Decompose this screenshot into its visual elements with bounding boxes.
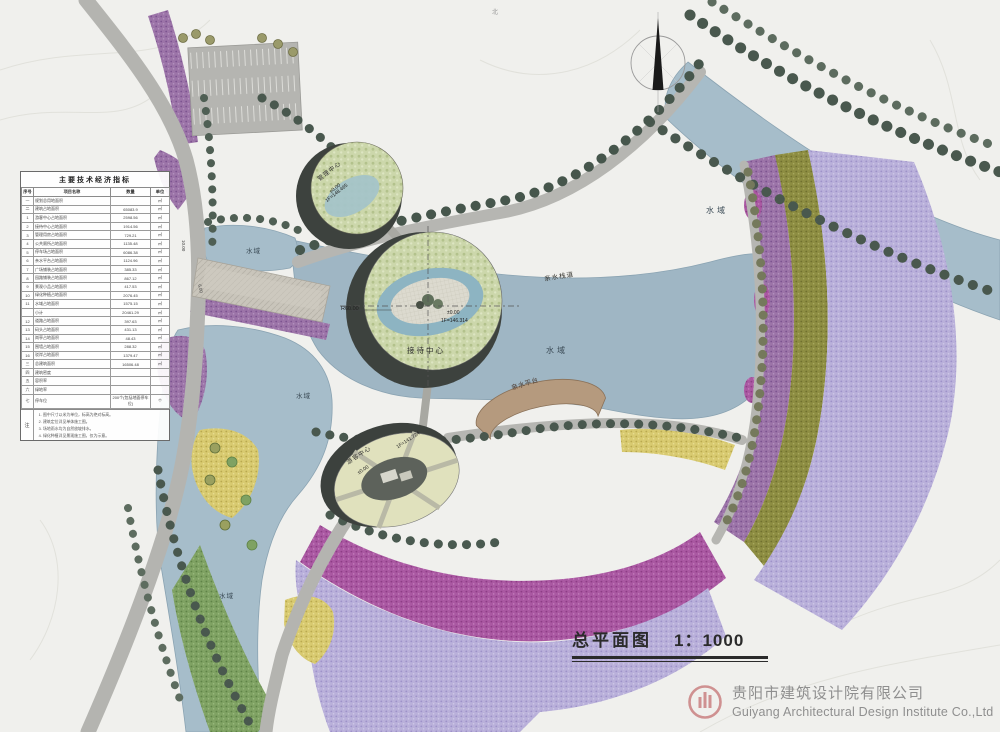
table-cell: 园路铺装占地面积 bbox=[34, 274, 111, 283]
table-cell: 200个(包括地面停车位) bbox=[111, 394, 151, 409]
table-cell: 七 bbox=[22, 394, 34, 409]
table-cell: 20461.29 bbox=[111, 308, 151, 317]
table-cell: 围墙占地面积 bbox=[34, 343, 111, 352]
table-cell: ㎡ bbox=[151, 351, 170, 360]
table-cell: ㎡ bbox=[151, 197, 170, 206]
table-cell bbox=[151, 386, 170, 395]
column-header: 数量 bbox=[111, 188, 151, 197]
table-row: 16驳岸占地面积1379.47㎡ bbox=[22, 351, 170, 360]
table-cell: 729.21 bbox=[111, 231, 151, 240]
table-cell: 容积率 bbox=[34, 377, 111, 386]
column-header: 序号 bbox=[22, 188, 34, 197]
water-label-north-pond: 水域 bbox=[246, 249, 261, 256]
table-cell: 2 bbox=[22, 222, 34, 231]
table-cell: 驳岸占地面积 bbox=[34, 351, 111, 360]
table-cell: 1914.56 bbox=[111, 222, 151, 231]
table-cell: 13 bbox=[22, 325, 34, 334]
table-row: 2接待中心占地面积1914.56㎡ bbox=[22, 222, 170, 231]
table-cell: ㎡ bbox=[151, 291, 170, 300]
table-row: 1游客中心占地面积2598.56㎡ bbox=[22, 214, 170, 223]
table-cell: ㎡ bbox=[151, 334, 170, 343]
table-cell: ㎡ bbox=[151, 308, 170, 317]
table-row: 6亲水平台占地面积1124.96㎡ bbox=[22, 257, 170, 266]
table-cell bbox=[22, 308, 34, 317]
title-rule-thick bbox=[572, 656, 768, 659]
road-dim-label-2: 6.00 bbox=[197, 284, 203, 294]
table-cell: 1379.47 bbox=[111, 351, 151, 360]
sheet-title-text: 总平面图 bbox=[572, 626, 652, 651]
company-logo-block: 贵阳市建筑设计院有限公司 Guiyang Architectural Desig… bbox=[686, 682, 993, 722]
north-text: 北 bbox=[492, 10, 498, 16]
table-cell: ㎡ bbox=[151, 222, 170, 231]
table-cell: 公共厕所占地面积 bbox=[34, 239, 111, 248]
indicator-table-title: 主要技术经济指标 bbox=[21, 172, 169, 187]
table-cell bbox=[111, 197, 151, 206]
table-cell bbox=[111, 386, 151, 395]
table-cell: 7 bbox=[22, 265, 34, 274]
table-cell: 建筑密度 bbox=[34, 368, 111, 377]
company-logo-icon bbox=[686, 682, 726, 722]
table-cell: 6 bbox=[22, 257, 34, 266]
table-row: 11水域占地面积1575.15㎡ bbox=[22, 300, 170, 309]
table-row: 5停车场占地面积6086.38㎡ bbox=[22, 248, 170, 257]
table-cell: 5 bbox=[22, 248, 34, 257]
table-cell: 个 bbox=[151, 394, 170, 409]
table-cell: ㎡ bbox=[151, 205, 170, 214]
table-row: 三总建筑面积16506.48㎡ bbox=[22, 360, 170, 369]
table-cell: 1135.48 bbox=[111, 239, 151, 248]
table-cell: 867.12 bbox=[111, 274, 151, 283]
table-row: 七停车位200个(包括地面停车位)个 bbox=[22, 394, 170, 409]
site-plan-sheet: 水域水域水域水域水域亲水栈道亲水平台接待中心R60.00±0.001F=146.… bbox=[0, 0, 1000, 732]
table-cell: ㎡ bbox=[151, 231, 170, 240]
table-row: 8园路铺装占地面积867.12㎡ bbox=[22, 274, 170, 283]
water-label-ne: 水域 bbox=[706, 207, 728, 215]
table-row: 4公共厕所占地面积1135.48㎡ bbox=[22, 239, 170, 248]
table-cell: ㎡ bbox=[151, 274, 170, 283]
table-cell: 1 bbox=[22, 214, 34, 223]
title-rule-thin bbox=[572, 661, 768, 662]
table-cell: 12 bbox=[22, 317, 34, 326]
table-cell: 385.33 bbox=[111, 265, 151, 274]
table-cell: 绿化种植占地面积 bbox=[34, 291, 111, 300]
table-cell: 10 bbox=[22, 291, 34, 300]
table-cell: 8 bbox=[22, 274, 34, 283]
table-cell: 亲水平台占地面积 bbox=[34, 257, 111, 266]
table-cell: 三 bbox=[22, 360, 34, 369]
note-line: 绿化种植详见景观施工图，仅为示意。 bbox=[43, 432, 113, 439]
table-cell: 停车位 bbox=[34, 394, 111, 409]
table-cell: 停车场占地面积 bbox=[34, 248, 111, 257]
table-cell: ㎡ bbox=[151, 360, 170, 369]
table-cell bbox=[111, 377, 151, 386]
table-cell: ㎡ bbox=[151, 214, 170, 223]
table-cell: 417.53 bbox=[111, 282, 151, 291]
table-cell: 16 bbox=[22, 351, 34, 360]
table-cell: 景观小品占地面积 bbox=[34, 282, 111, 291]
table-cell: ㎡ bbox=[151, 257, 170, 266]
table-row: 13码头占地面积431.13㎡ bbox=[22, 325, 170, 334]
table-cell: ㎡ bbox=[151, 248, 170, 257]
water-label-west: 水域 bbox=[296, 394, 311, 401]
table-cell: 管理用房占地面积 bbox=[34, 231, 111, 240]
table-row: 14岗亭占地面积48.43㎡ bbox=[22, 334, 170, 343]
table-row: 7广场铺装占地面积385.33㎡ bbox=[22, 265, 170, 274]
radius-label: R60.00 bbox=[341, 307, 359, 313]
table-cell: ㎡ bbox=[151, 239, 170, 248]
table-cell: 二 bbox=[22, 205, 34, 214]
notes-key: 注 bbox=[21, 410, 34, 440]
table-row: 五容积率 bbox=[22, 377, 170, 386]
reception-center-label: 接待中心 bbox=[407, 347, 445, 355]
table-cell: 码头占地面积 bbox=[34, 325, 111, 334]
table-cell: 规划总用地面积 bbox=[34, 197, 111, 206]
table-cell: 4 bbox=[22, 239, 34, 248]
center-elev-label-1: ±0.00 bbox=[447, 311, 459, 316]
table-cell: 6086.38 bbox=[111, 248, 151, 257]
table-cell: 288.32 bbox=[111, 343, 151, 352]
building-lower bbox=[307, 406, 472, 546]
center-elev-label-2: 1F=146.314 bbox=[441, 319, 468, 324]
table-cell: 65083.9 bbox=[111, 205, 151, 214]
table-cell bbox=[151, 368, 170, 377]
table-cell: 1124.96 bbox=[111, 257, 151, 266]
table-cell: 道路占地面积 bbox=[34, 317, 111, 326]
table-cell: 水域占地面积 bbox=[34, 300, 111, 309]
table-cell: 16506.48 bbox=[111, 360, 151, 369]
table-cell: ㎡ bbox=[151, 265, 170, 274]
table-cell: ㎡ bbox=[151, 343, 170, 352]
note-line: 图中尺寸以米为单位，标高为绝对标高。 bbox=[43, 411, 113, 418]
table-cell: 五 bbox=[22, 377, 34, 386]
road-dim-label-1: 10.00 bbox=[181, 240, 186, 251]
table-cell: 绿地率 bbox=[34, 386, 111, 395]
table-cell: 11 bbox=[22, 300, 34, 309]
table-cell: 小计 bbox=[34, 308, 111, 317]
table-row: 15围墙占地面积288.32㎡ bbox=[22, 343, 170, 352]
sheet-title-block: 总平面图 1：1000 bbox=[572, 626, 768, 662]
company-name-en: Guiyang Architectural Design Institute C… bbox=[732, 705, 993, 719]
table-cell bbox=[151, 377, 170, 386]
table-row: 六绿地率 bbox=[22, 386, 170, 395]
note-line: 建筑定位详见单体施工图。 bbox=[43, 418, 113, 425]
table-cell: 广场铺装占地面积 bbox=[34, 265, 111, 274]
water-label-center: 水域 bbox=[546, 347, 568, 355]
table-cell: ㎡ bbox=[151, 300, 170, 309]
table-cell: 3 bbox=[22, 231, 34, 240]
table-cell: ㎡ bbox=[151, 325, 170, 334]
table-cell: ㎡ bbox=[151, 317, 170, 326]
table-cell: ㎡ bbox=[151, 282, 170, 291]
table-cell: 397.63 bbox=[111, 317, 151, 326]
table-row: 3管理用房占地面积729.21㎡ bbox=[22, 231, 170, 240]
building-upper bbox=[296, 142, 403, 249]
note-line: 场地雨水均为自然放坡排水。 bbox=[43, 425, 113, 432]
table-row: 10绿化种植占地面积2076.45㎡ bbox=[22, 291, 170, 300]
table-row: 小计20461.29㎡ bbox=[22, 308, 170, 317]
company-name-cn: 贵阳市建筑设计院有限公司 bbox=[732, 682, 993, 703]
table-cell: 431.13 bbox=[111, 325, 151, 334]
table-cell: 建筑占地面积 bbox=[34, 205, 111, 214]
table-row: 四建筑密度 bbox=[22, 368, 170, 377]
sheet-scale-text: 1：1000 bbox=[674, 626, 744, 651]
table-cell: 一 bbox=[22, 197, 34, 206]
table-cell: 2598.56 bbox=[111, 214, 151, 223]
table-cell: 1575.15 bbox=[111, 300, 151, 309]
table-cell: 9 bbox=[22, 282, 34, 291]
table-cell: 游客中心占地面积 bbox=[34, 214, 111, 223]
table-cell: 48.43 bbox=[111, 334, 151, 343]
indicator-table-notes: 注 图中尺寸以米为单位，标高为绝对标高。建筑定位详见单体施工图。场地雨水均为自然… bbox=[21, 409, 169, 440]
indicator-table: 主要技术经济指标 序号项目名称数量单位 一规划总用地面积㎡二建筑占地面积6508… bbox=[20, 171, 170, 441]
table-cell: 2076.45 bbox=[111, 291, 151, 300]
indicator-table-header: 序号项目名称数量单位 bbox=[22, 188, 170, 197]
table-cell: 四 bbox=[22, 368, 34, 377]
notes-list: 图中尺寸以米为单位，标高为绝对标高。建筑定位详见单体施工图。场地雨水均为自然放坡… bbox=[36, 411, 113, 439]
table-cell bbox=[111, 368, 151, 377]
column-header: 项目名称 bbox=[34, 188, 111, 197]
table-cell: 六 bbox=[22, 386, 34, 395]
column-header: 单位 bbox=[151, 188, 170, 197]
table-cell: 14 bbox=[22, 334, 34, 343]
table-row: 12道路占地面积397.63㎡ bbox=[22, 317, 170, 326]
table-cell: 接待中心占地面积 bbox=[34, 222, 111, 231]
table-row: 一规划总用地面积㎡ bbox=[22, 197, 170, 206]
table-cell: 总建筑面积 bbox=[34, 360, 111, 369]
table-cell: 岗亭占地面积 bbox=[34, 334, 111, 343]
table-cell: 15 bbox=[22, 343, 34, 352]
table-row: 9景观小品占地面积417.53㎡ bbox=[22, 282, 170, 291]
table-row: 二建筑占地面积65083.9㎡ bbox=[22, 205, 170, 214]
water-label-south: 水域 bbox=[219, 594, 234, 601]
